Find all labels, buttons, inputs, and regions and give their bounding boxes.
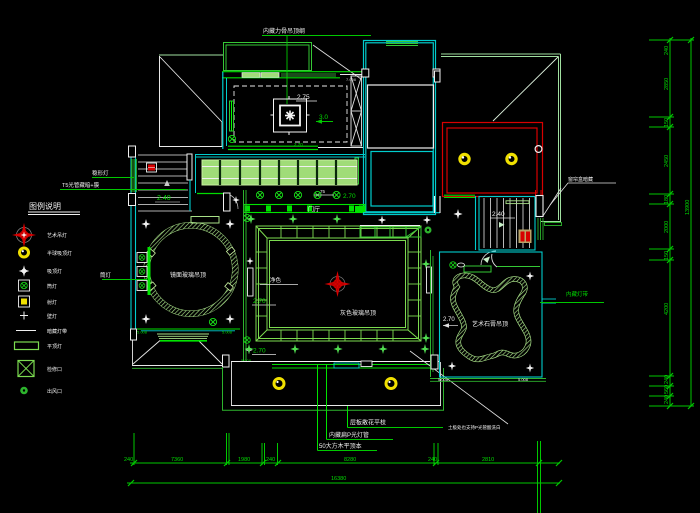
svg-text:稳形灯: 稳形灯: [92, 169, 109, 177]
svg-text:2.70: 2.70: [294, 142, 303, 147]
svg-text:门厅: 门厅: [308, 206, 320, 214]
svg-text:出风口: 出风口: [47, 388, 62, 395]
svg-text:T5光管藏暗+膜: T5光管藏暗+膜: [62, 181, 100, 189]
svg-text:射灯: 射灯: [47, 299, 57, 306]
svg-text:5.008: 5.008: [137, 330, 148, 335]
svg-text:13900: 13900: [685, 200, 691, 215]
svg-text:2.70: 2.70: [253, 348, 266, 355]
svg-text:75: 75: [320, 189, 326, 194]
svg-text:240: 240: [428, 457, 437, 463]
svg-text:180: 180: [664, 195, 670, 204]
svg-text:7360: 7360: [171, 457, 183, 463]
svg-text:筒灯: 筒灯: [47, 283, 57, 290]
svg-text:5.008: 5.008: [241, 358, 252, 363]
svg-text:2.40: 2.40: [492, 211, 505, 218]
svg-text:半球吸顶灯: 半球吸顶灯: [47, 250, 72, 257]
svg-text:150: 150: [664, 118, 670, 127]
svg-text:灰色玻璃吊顶: 灰色玻璃吊顶: [340, 309, 376, 317]
svg-text:5.008: 5.008: [518, 377, 529, 382]
svg-text:240: 240: [664, 395, 670, 404]
svg-text:2.75: 2.75: [297, 94, 310, 101]
svg-text:2850: 2850: [664, 78, 670, 90]
svg-text:240: 240: [664, 375, 670, 384]
svg-text:2.70: 2.70: [343, 193, 356, 200]
svg-text:内藏力骨吊顶纲: 内藏力骨吊顶纲: [263, 27, 305, 35]
svg-text:8280: 8280: [344, 457, 356, 463]
svg-text:2.70: 2.70: [253, 298, 266, 305]
svg-text:2450: 2450: [664, 155, 670, 167]
svg-text:240: 240: [664, 46, 670, 55]
svg-text:土极处也支持P光管酸洗白: 土极处也支持P光管酸洗白: [448, 424, 501, 431]
svg-text:2.70: 2.70: [443, 317, 455, 323]
svg-text:5.008: 5.008: [222, 330, 233, 335]
svg-text:检修口: 检修口: [47, 366, 62, 373]
svg-text:内藏扁P光灯管: 内藏扁P光灯管: [329, 431, 369, 439]
svg-text:平顶灯: 平顶灯: [47, 343, 62, 350]
svg-text:2000: 2000: [664, 221, 670, 233]
svg-text:壁灯: 壁灯: [47, 313, 57, 320]
svg-text:7.008: 7.008: [346, 77, 357, 82]
svg-text:240: 240: [266, 457, 275, 463]
svg-text:240: 240: [124, 457, 133, 463]
svg-text:艺术石膏吊顶: 艺术石膏吊顶: [472, 320, 508, 328]
svg-text:1980: 1980: [238, 457, 250, 463]
svg-text:内藏灯带: 内藏灯带: [566, 290, 589, 298]
svg-text:4200: 4200: [664, 303, 670, 315]
svg-text:50大方木平顶本: 50大方木平顶本: [319, 442, 362, 450]
svg-text:16380: 16380: [331, 476, 346, 482]
svg-text:净色: 净色: [270, 276, 282, 284]
svg-text:150: 150: [664, 251, 670, 260]
svg-text:层板散花平枝: 层板散花平枝: [350, 419, 386, 427]
svg-text:艺术吊灯: 艺术吊灯: [47, 232, 67, 239]
svg-text:镜面玻璃吊顶: 镜面玻璃吊顶: [170, 271, 206, 279]
svg-text:2.40: 2.40: [157, 195, 171, 202]
svg-text:图例说明: 图例说明: [29, 201, 61, 211]
svg-text:560: 560: [664, 385, 670, 394]
svg-text:窗帘盒暗藏: 窗帘盒暗藏: [568, 176, 593, 183]
svg-text:5.008: 5.008: [438, 377, 449, 382]
svg-text:吸顶灯: 吸顶灯: [47, 268, 62, 275]
svg-text:暗藏灯带: 暗藏灯带: [47, 328, 67, 335]
svg-text:筒灯: 筒灯: [100, 271, 112, 279]
svg-text:2810: 2810: [482, 457, 494, 463]
